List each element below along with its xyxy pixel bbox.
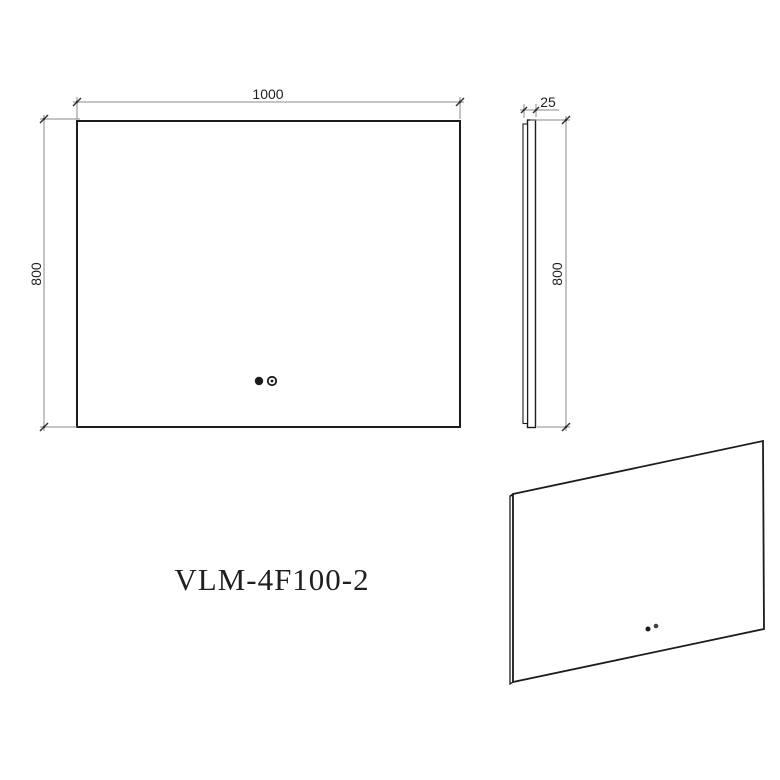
dimension-tick-dot (43, 118, 45, 120)
drawing-sheet: 1000 800 25 (0, 0, 780, 780)
side-view-glass-edge (523, 124, 528, 424)
touch-sensor-left-icon (255, 377, 263, 385)
perspective-touch-sensor-right-icon (654, 624, 659, 629)
front-height-dimension-label: 800 (28, 262, 44, 286)
dimension-tick-dot (535, 109, 537, 111)
front-width-dimension-label: 1000 (252, 86, 283, 102)
front-height-dimension: 800 (28, 115, 80, 431)
front-view (77, 121, 460, 427)
perspective-touch-sensor-left-icon (646, 627, 651, 632)
side-view-back-panel (528, 120, 536, 428)
dimension-tick-dot (43, 426, 45, 428)
front-width-dimension: 1000 (73, 86, 464, 119)
perspective-view (510, 441, 764, 684)
dimension-tick-dot (76, 101, 78, 103)
dimension-tick-dot (565, 426, 567, 428)
dimension-tick-dot (459, 101, 461, 103)
side-depth-dimension-label: 25 (540, 94, 556, 110)
product-model-label: VLM-4F100-2 (174, 562, 369, 597)
side-view (523, 120, 536, 428)
dimension-tick-dot (523, 109, 525, 111)
technical-drawing-canvas: 1000 800 25 (0, 0, 780, 780)
perspective-front-face (513, 441, 764, 682)
touch-sensor-right-center-dot (271, 380, 274, 383)
dimension-tick-dot (565, 119, 567, 121)
side-height-dimension-label: 800 (549, 262, 565, 286)
side-depth-dimension: 25 (520, 94, 559, 118)
